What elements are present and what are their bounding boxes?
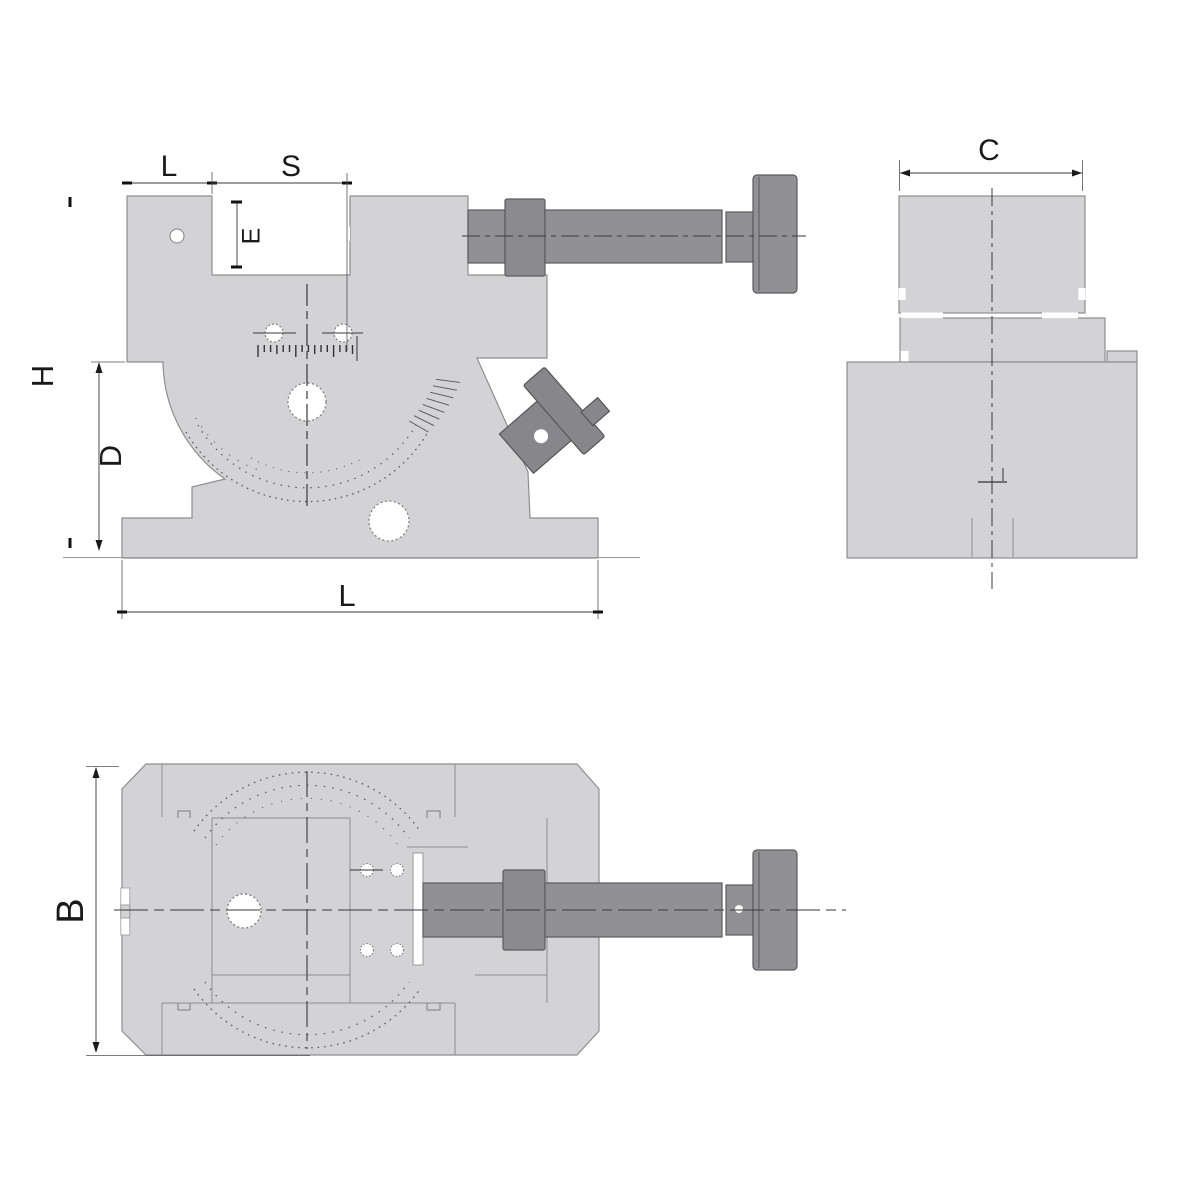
vise-technical-drawing: L S E H D bbox=[0, 0, 1200, 1200]
side-guide-slot-right bbox=[1042, 312, 1078, 318]
jaw-plate-plan bbox=[413, 853, 423, 965]
technical-drawing-page: L S E H D bbox=[0, 0, 1200, 1200]
keyway-tab bbox=[121, 905, 130, 918]
side-middle-notch bbox=[901, 351, 909, 362]
jaw-notch bbox=[343, 226, 350, 241]
plan-view: B bbox=[50, 764, 846, 1056]
front-view: L S E H D bbox=[25, 150, 806, 619]
side-jaw-notch-right bbox=[1078, 288, 1085, 300]
side-view: C bbox=[847, 134, 1137, 589]
dim-label-l-top: L bbox=[161, 150, 178, 183]
jaw-block-hole bbox=[170, 229, 184, 243]
plan-tapped-hole bbox=[391, 944, 404, 957]
dim-label-h: H bbox=[25, 365, 60, 387]
dim-label-d: D bbox=[93, 445, 128, 467]
plan-center-hole bbox=[227, 894, 261, 928]
side-jaw-notch-left bbox=[899, 288, 906, 300]
screw-shaft bbox=[545, 210, 722, 263]
dim-label-s: S bbox=[281, 150, 301, 183]
screw-shaft-inner bbox=[468, 210, 505, 263]
base-hole bbox=[369, 501, 409, 541]
plan-tapped-hole bbox=[361, 944, 374, 957]
dimension-l-top: L bbox=[122, 150, 217, 194]
lead-screw-front bbox=[462, 175, 806, 293]
dim-label-l-bottom: L bbox=[338, 578, 355, 613]
dimension-h: H bbox=[25, 197, 71, 548]
side-middle-block bbox=[900, 318, 1105, 362]
dimension-l-bottom: L bbox=[117, 560, 603, 619]
dim-label-b: B bbox=[50, 898, 92, 923]
side-step-right bbox=[1107, 351, 1137, 362]
side-guide-slot-left bbox=[901, 312, 943, 318]
plan-tapped-hole bbox=[391, 864, 404, 877]
dimension-c: C bbox=[900, 134, 1083, 191]
dim-label-e: E bbox=[238, 228, 266, 245]
screw-neck bbox=[726, 212, 753, 262]
dimension-e: E bbox=[231, 201, 266, 269]
dim-label-c: C bbox=[978, 134, 1000, 167]
screw-collar bbox=[505, 199, 545, 276]
screw-pin-hole bbox=[735, 905, 743, 913]
screw-knob bbox=[753, 175, 797, 293]
